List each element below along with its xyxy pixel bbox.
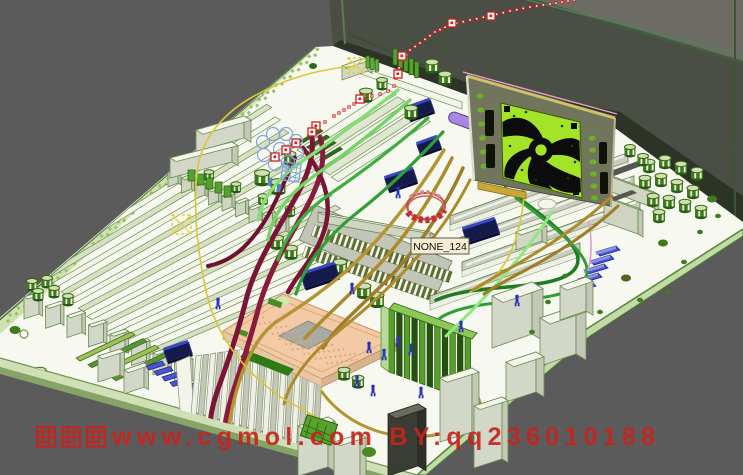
svg-text:NONE_124: NONE_124 (413, 241, 467, 253)
